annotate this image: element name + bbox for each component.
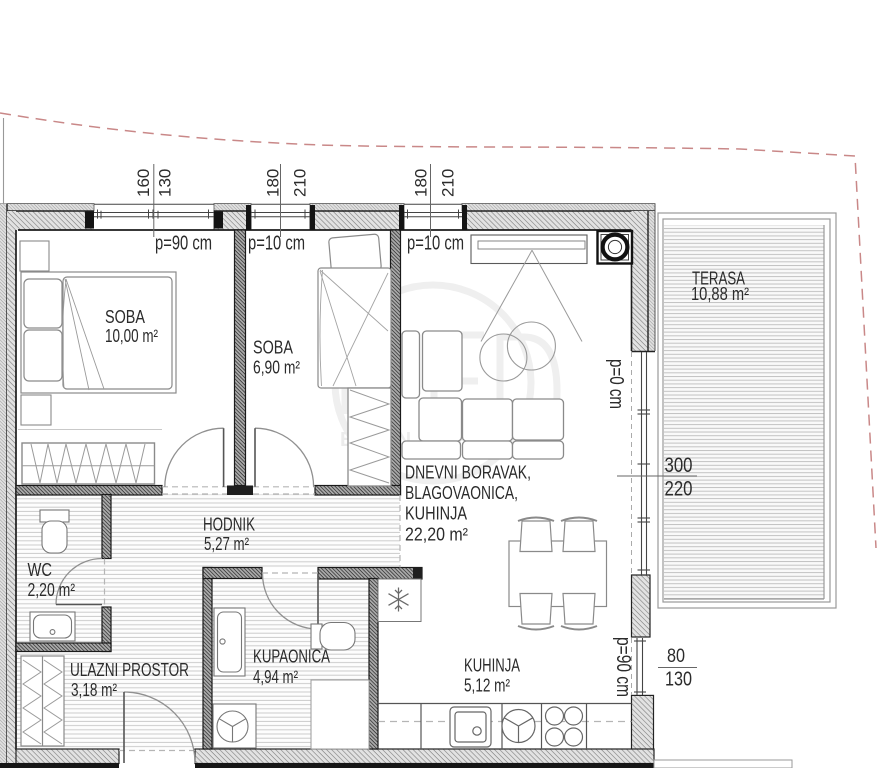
svg-text:22,20 m²: 22,20 m² [405, 525, 468, 545]
svg-text:80: 80 [667, 645, 685, 667]
svg-text:p=0 cm: p=0 cm [605, 359, 627, 409]
svg-text:BLAGOVAONICA,: BLAGOVAONICA, [405, 483, 518, 503]
svg-text:180: 180 [264, 169, 283, 197]
svg-text:130: 130 [156, 169, 175, 197]
svg-text:KUPAONICA: KUPAONICA [253, 647, 330, 667]
svg-text:130: 130 [665, 669, 692, 691]
svg-text:WC: WC [28, 560, 53, 580]
svg-text:220: 220 [665, 478, 693, 501]
svg-text:HODNIK: HODNIK [203, 515, 255, 535]
svg-text:4,94 m²: 4,94 m² [253, 667, 298, 687]
svg-text:5,12 m²: 5,12 m² [464, 676, 510, 696]
svg-text:p=10 cm: p=10 cm [407, 233, 464, 255]
svg-text:SOBA: SOBA [105, 307, 145, 327]
svg-text:ULAZNI PROSTOR: ULAZNI PROSTOR [70, 660, 189, 680]
svg-text:6,90 m²: 6,90 m² [253, 358, 300, 378]
svg-text:3,18 m²: 3,18 m² [71, 680, 117, 700]
svg-text:210: 210 [291, 169, 310, 197]
svg-text:KUHINJA: KUHINJA [464, 656, 520, 676]
svg-text:p=90 cm: p=90 cm [612, 637, 634, 697]
svg-text:180: 180 [412, 169, 431, 197]
svg-text:300: 300 [665, 454, 693, 477]
svg-text:10,88 m²: 10,88 m² [691, 284, 749, 304]
svg-text:2,20 m²: 2,20 m² [28, 580, 76, 600]
svg-text:p=90 cm: p=90 cm [155, 233, 212, 255]
svg-text:p=10 cm: p=10 cm [248, 233, 305, 255]
svg-text:5,27 m²: 5,27 m² [204, 534, 249, 554]
svg-text:DNEVNI BORAVAK,: DNEVNI BORAVAK, [405, 463, 531, 483]
svg-text:210: 210 [439, 169, 458, 197]
svg-text:160: 160 [134, 169, 153, 197]
svg-text:10,00 m²: 10,00 m² [105, 326, 158, 346]
svg-text:KUHINJA: KUHINJA [405, 504, 467, 524]
svg-text:SOBA: SOBA [253, 338, 293, 358]
